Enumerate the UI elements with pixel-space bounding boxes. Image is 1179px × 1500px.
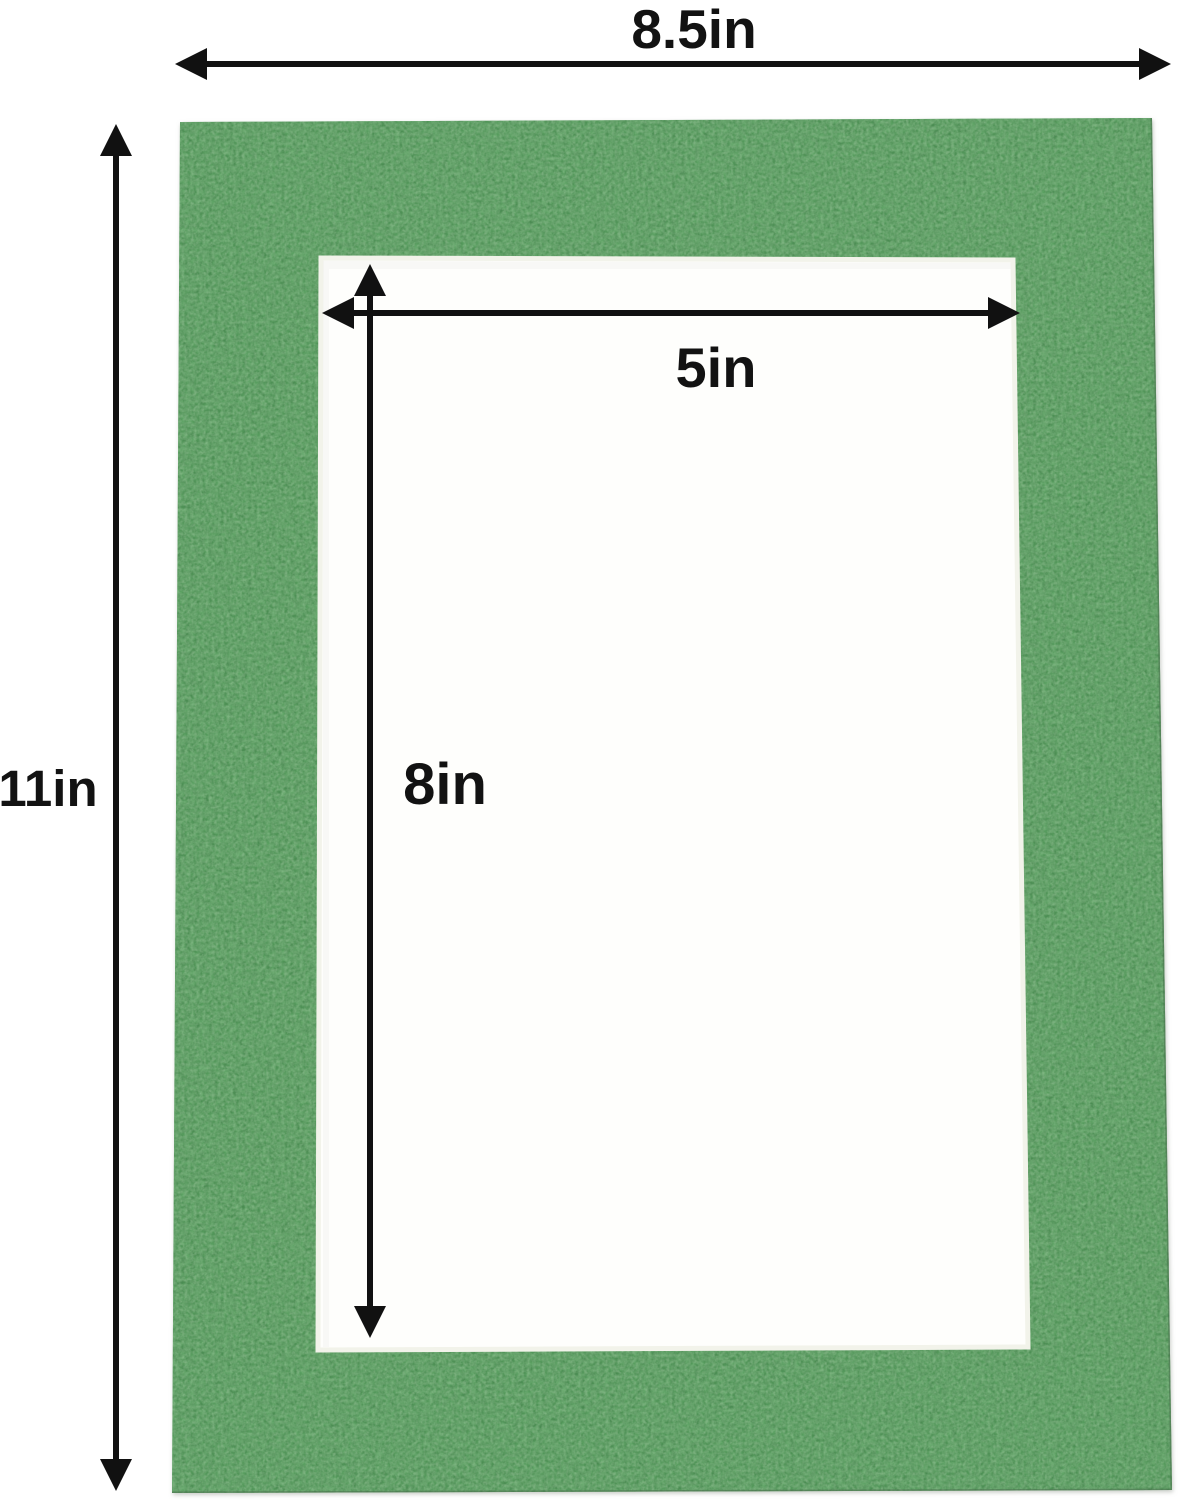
- svg-text:5in: 5in: [676, 336, 757, 399]
- svg-text:8in: 8in: [403, 752, 487, 817]
- svg-text:11in: 11in: [0, 760, 98, 817]
- svg-text:8.5in: 8.5in: [631, 0, 756, 60]
